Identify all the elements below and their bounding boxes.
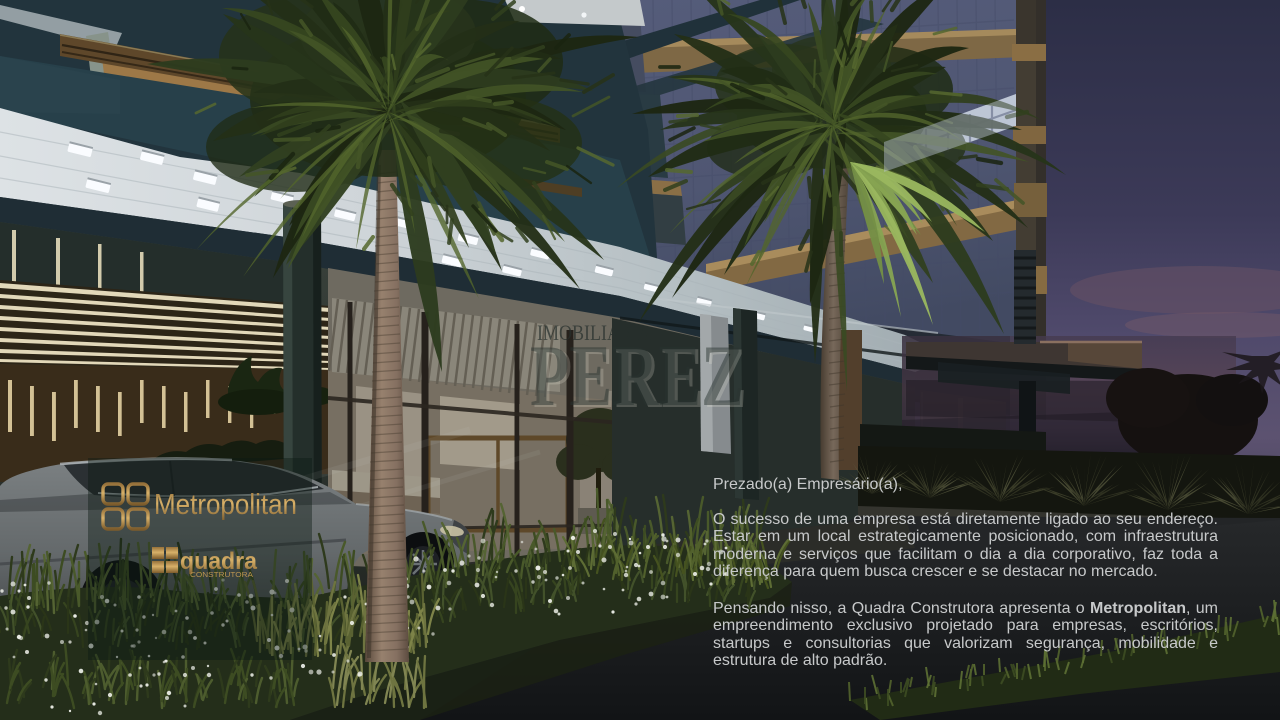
svg-text:Metropolitan: Metropolitan	[154, 489, 297, 521]
svg-text:PEREZ: PEREZ	[530, 328, 744, 425]
svg-text:quadra: quadra	[180, 548, 258, 575]
svg-text:CONSTRUTORA: CONSTRUTORA	[190, 572, 253, 579]
